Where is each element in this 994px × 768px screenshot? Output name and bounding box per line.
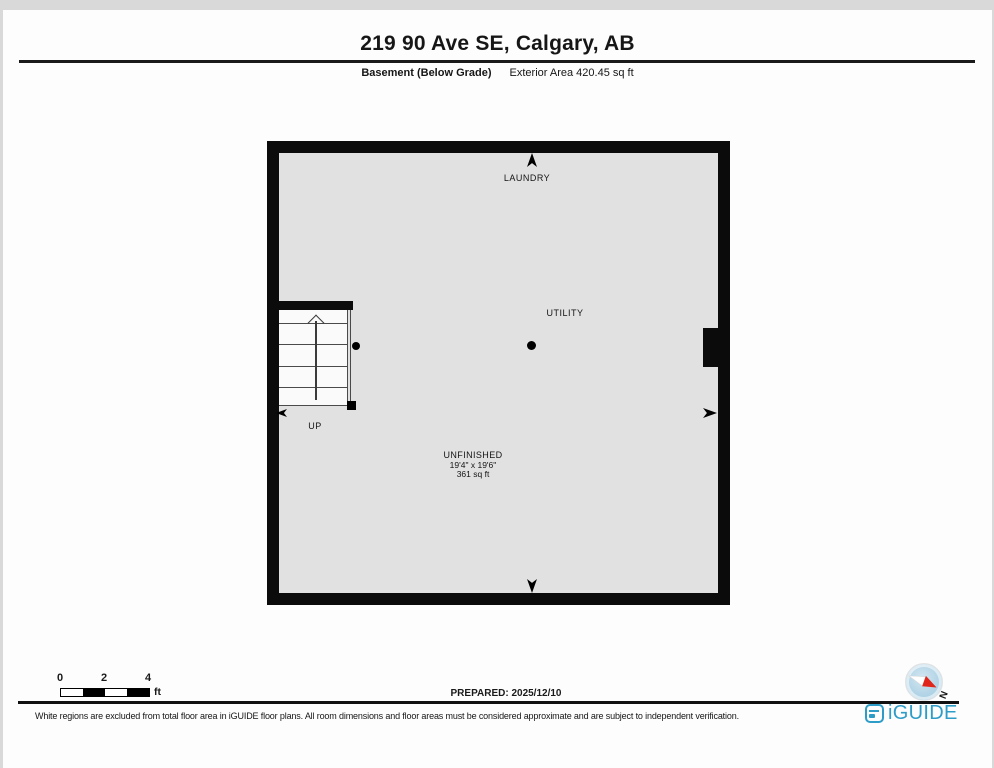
iguide-brand-text: iGUIDE [888, 704, 958, 723]
scale-tick-2: 2 [101, 672, 107, 684]
railing-post-dot [352, 342, 360, 350]
iguide-logo-detail [869, 710, 879, 712]
prepared-date: PREPARED: 2025/12/10 [451, 688, 562, 699]
room-label-utility: UTILITY [546, 308, 583, 318]
scale-segment [83, 689, 105, 696]
subtitle: Basement (Below Grade) Exterior Area 420… [3, 67, 992, 79]
footer-divider [18, 701, 959, 704]
scale-unit-label: ft [154, 686, 161, 698]
support-post-dot [527, 341, 536, 350]
stair-direction-line [315, 321, 317, 400]
scale-tick-4: 4 [145, 672, 151, 684]
scale-bar: 0 2 4 ft [53, 672, 183, 704]
floorplan: LAUNDRY UTILITY UNFINISHED 19'4" x 19'6"… [267, 141, 730, 605]
scale-segment [105, 689, 127, 696]
scale-bar-segments [60, 688, 150, 697]
scale-tick-0: 0 [57, 672, 63, 684]
stair-tread [279, 366, 348, 367]
page-background: 219 90 Ave SE, Calgary, AB Basement (Bel… [3, 10, 992, 768]
iguide-logo-detail [869, 714, 875, 719]
room-block-unfinished: UNFINISHED 19'4" x 19'6" 361 sq ft [443, 451, 502, 479]
stair-tread [279, 344, 348, 345]
iguide-logo-icon [865, 704, 884, 723]
door-arrow-right-icon [703, 408, 717, 418]
window-arrow-up-icon [527, 153, 537, 167]
iguide-brand: iGUIDE [865, 704, 958, 723]
scale-segment [127, 689, 149, 696]
stair-bottom-edge [279, 405, 352, 406]
exterior-area-label: Exterior Area 420.45 sq ft [510, 67, 634, 79]
stair-entry-arrow-icon [276, 409, 287, 417]
room-label-laundry: LAUNDRY [504, 173, 550, 183]
stair-separator-wall [279, 301, 353, 310]
stair-railing [347, 310, 351, 406]
room-area: 361 sq ft [443, 470, 502, 479]
compass-needle-icon [905, 663, 941, 699]
newel-post-square [347, 401, 356, 410]
stairs-up-label: UP [308, 421, 322, 431]
header-divider [19, 60, 975, 63]
window-arrow-down-icon [527, 579, 537, 593]
compass: N [905, 663, 943, 701]
stair-tread [279, 387, 348, 388]
scale-segment [61, 689, 83, 696]
page-title: 219 90 Ave SE, Calgary, AB [3, 32, 992, 56]
footer-disclaimer: White regions are excluded from total fl… [35, 711, 739, 721]
wall-bump [703, 328, 719, 367]
floor-label: Basement (Below Grade) [361, 67, 491, 79]
